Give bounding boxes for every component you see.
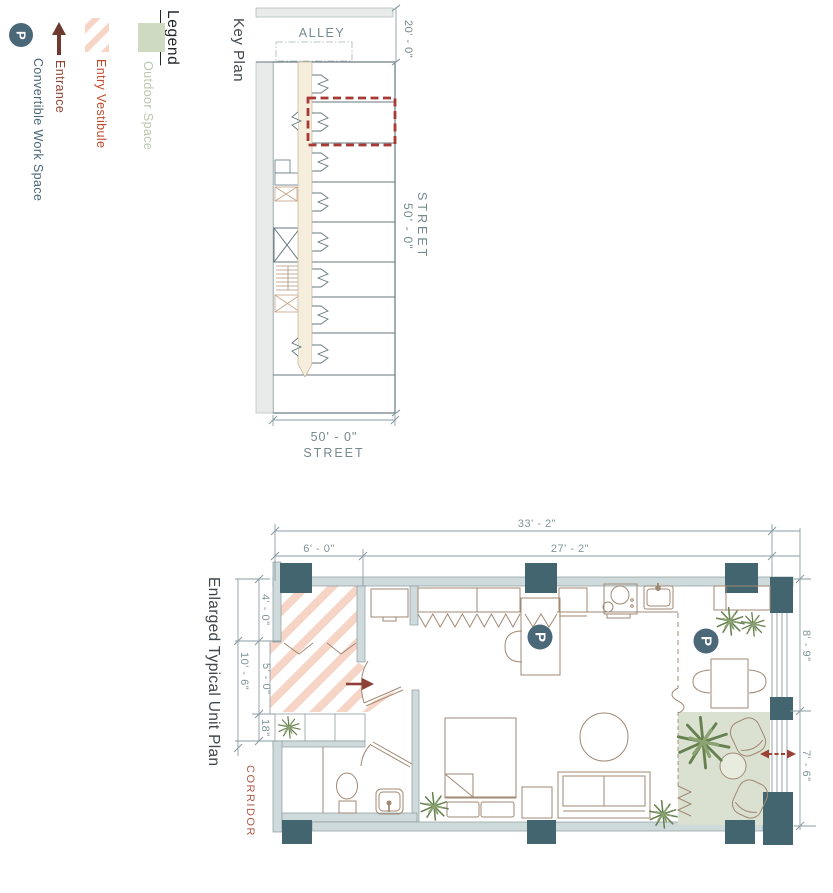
convertible-workspace-label: Convertible Work Space <box>31 58 45 201</box>
dim-entry-depth: 5' - 0" <box>260 663 272 695</box>
vestibule-wall <box>357 586 365 662</box>
outdoor-table <box>720 753 746 779</box>
shaft-upper <box>275 187 297 201</box>
street-bottom-dim: 50' - 0" <box>311 430 358 444</box>
badge-letter: P <box>698 636 715 646</box>
column <box>280 563 312 593</box>
kitchen <box>557 583 678 618</box>
workspace-badge-icon: P <box>528 625 553 650</box>
entrance-label: Entrance <box>53 60 67 113</box>
column <box>527 820 556 844</box>
vestibule-cabinet <box>371 589 408 617</box>
closet-bifold <box>418 588 557 627</box>
alley-dim: 20' - 0" <box>402 20 414 58</box>
stove <box>603 584 637 618</box>
dim-shelf-depth: 18" <box>259 719 271 737</box>
side-table <box>522 787 552 818</box>
floor-plan-sheet: Legend Outdoor Space Entry Vestibule Ent… <box>0 0 833 893</box>
plant-icon <box>742 613 765 636</box>
curtain-squiggle-icon <box>672 688 684 713</box>
dim-right-upper: 8' - 9" <box>800 630 812 662</box>
bath-left-wall <box>273 741 282 832</box>
pillow <box>447 802 479 817</box>
round-rug <box>580 713 628 761</box>
side-alley-strip <box>256 62 273 413</box>
left-wall <box>273 562 281 642</box>
dining-chair <box>693 670 710 693</box>
alley-dashed-area <box>276 42 352 61</box>
column <box>725 563 758 593</box>
column <box>725 820 755 844</box>
dining-table <box>711 659 748 708</box>
bath-top-wall <box>273 741 365 747</box>
closet-wall <box>410 586 418 625</box>
shaft-lower <box>275 295 300 312</box>
bed <box>445 718 516 817</box>
street-bottom-label: STREET <box>303 446 364 460</box>
entrance-arrow-icon <box>52 22 66 55</box>
arrow-head <box>52 22 66 35</box>
alley-zone: ALLEY <box>256 8 393 61</box>
dim-left-depth: 10' - 6" <box>238 652 250 690</box>
bathroom-door <box>361 742 412 767</box>
badge-letter: P <box>14 31 29 40</box>
dim-overall-width: 33' - 2" <box>518 518 556 530</box>
entry-vestibule-swatch-icon <box>85 18 109 52</box>
window-pier <box>770 697 793 720</box>
key-plan: Key Plan ALLEY <box>160 0 435 470</box>
kitchen-sink <box>644 583 673 609</box>
workspace-badge-icon: P <box>694 629 719 654</box>
corridor-strip <box>298 62 312 377</box>
enlarged-unit-plan: Enlarged Typical Unit Plan <box>195 495 833 893</box>
bathroom <box>323 742 412 814</box>
toilet <box>337 773 358 799</box>
street-right-label: STREET <box>415 192 429 259</box>
pillow <box>481 802 514 817</box>
column <box>770 577 793 613</box>
arrow-shaft <box>57 35 62 55</box>
dining-set <box>693 659 766 708</box>
street-right-dim: 50' - 0" <box>401 203 415 250</box>
plant-icon <box>421 793 448 820</box>
desk-chair <box>505 631 522 662</box>
bathroom-wall <box>412 690 419 825</box>
dim-vestibule-width: 6' - 0" <box>303 543 335 555</box>
unit-plan-title: Enlarged Typical Unit Plan <box>205 577 222 766</box>
convertible-workspace-badge-icon: P <box>9 23 33 47</box>
elevator <box>274 228 300 262</box>
key-plan-title: Key Plan <box>230 18 247 82</box>
column <box>525 563 557 593</box>
alley-pavement <box>256 8 393 17</box>
entry-vestibule-label: Entry Vestibule <box>94 59 108 148</box>
dim-right-lower: 7' - 6" <box>800 750 812 782</box>
corner-column <box>763 792 793 845</box>
stairs <box>276 266 301 290</box>
alley-label: ALLEY <box>299 26 345 40</box>
column <box>282 820 312 844</box>
fridge <box>559 588 587 612</box>
sofa <box>558 772 650 818</box>
dining-chair <box>749 670 766 693</box>
plant-icon <box>717 608 744 635</box>
dim-main-width: 27' - 2" <box>551 543 589 555</box>
dim-vestibule-depth: 4' - 0" <box>259 594 271 626</box>
outdoor-space-label: Outdoor Space <box>141 61 155 150</box>
corridor-label: CORRIDOR <box>244 765 256 837</box>
badge-letter: P <box>532 632 549 642</box>
